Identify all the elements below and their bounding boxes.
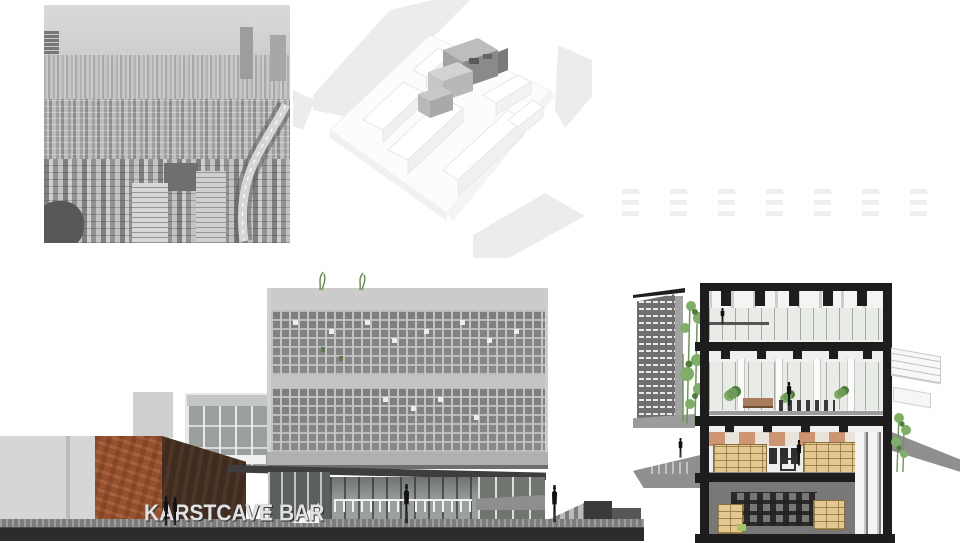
roof-slab xyxy=(700,283,892,291)
tower-right-pier xyxy=(545,288,548,452)
photo-highrise-right xyxy=(240,27,253,79)
site-massing-axonometric xyxy=(293,0,593,258)
bamboo-planting-right xyxy=(879,408,915,474)
basement-shelf-right xyxy=(813,500,845,530)
sectional-perspective xyxy=(633,282,960,543)
wing-stair-hatch xyxy=(651,462,693,474)
person-silhouette xyxy=(677,438,684,458)
photo-white-building xyxy=(132,183,168,243)
tower-parapet-band xyxy=(267,288,548,310)
board-formed-wall xyxy=(0,436,95,528)
library-shelf-right xyxy=(803,442,857,474)
section-left-wall xyxy=(700,286,709,538)
tower-left-pier xyxy=(267,288,271,452)
waffle-grid-tower xyxy=(267,288,548,465)
photo-dark-block xyxy=(164,163,198,191)
dash-column xyxy=(910,189,927,220)
ground-base-strip xyxy=(0,527,644,541)
roof-plants xyxy=(312,270,382,290)
level3-floor xyxy=(709,411,883,415)
small-frame xyxy=(780,458,796,471)
level3-floor-slab xyxy=(695,416,891,426)
exterior-balcony-lower xyxy=(893,387,931,409)
section-bottom-slab xyxy=(695,534,895,543)
street-elevation: KARSTCAVE BAR xyxy=(0,270,648,543)
dash-column xyxy=(622,189,639,220)
level4-floor-slab xyxy=(695,342,891,351)
dash-column xyxy=(862,189,879,220)
dash-column xyxy=(814,189,831,220)
basement-furniture xyxy=(731,492,817,526)
mezzanine-rail xyxy=(709,322,769,325)
dash-column xyxy=(766,189,783,220)
wall-joint xyxy=(66,436,70,528)
dash-column xyxy=(670,189,687,220)
green-bin xyxy=(737,524,746,531)
photo-skyline-band xyxy=(44,55,290,101)
concrete-pier xyxy=(133,392,173,438)
tower-waffle-band-lower xyxy=(271,388,545,452)
presentation-board: KARSTCAVE BAR xyxy=(0,0,960,543)
tower-waffle-band-upper xyxy=(271,310,545,375)
terrace-balustrade xyxy=(334,499,472,512)
level3-chairs xyxy=(779,400,835,411)
indoor-plant xyxy=(837,388,846,397)
indoor-plant xyxy=(727,388,738,399)
dash-column xyxy=(718,189,735,220)
faint-dash-pattern xyxy=(622,189,942,220)
photo-curved-road xyxy=(194,103,290,243)
tower-soffit xyxy=(267,452,548,469)
level3-table xyxy=(743,398,773,408)
photo-trees xyxy=(44,201,84,243)
photo-highrise-far-right xyxy=(270,35,286,81)
exterior-balcony-upper xyxy=(891,348,941,385)
tower-spandrel-band xyxy=(267,375,548,388)
atrium-clerestory xyxy=(187,395,270,406)
urban-context-photo xyxy=(44,5,290,243)
